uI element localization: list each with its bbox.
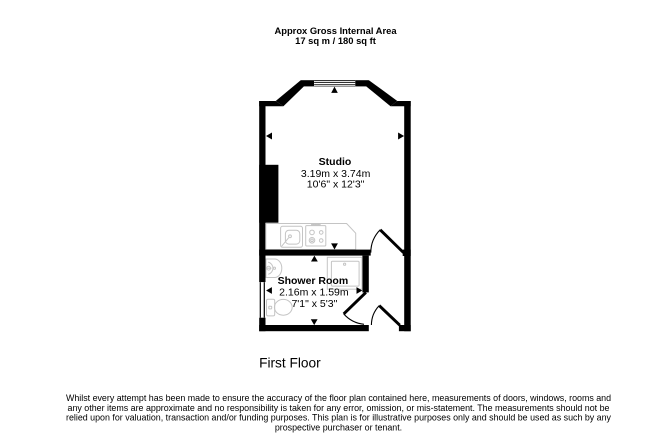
svg-text:Shower Room: Shower Room [278, 275, 349, 287]
svg-text:any other items are approximat: any other items are approximate and no r… [68, 403, 610, 413]
svg-text:7'1" x 5'3": 7'1" x 5'3" [291, 298, 337, 310]
svg-text:prospective purchaser or tenan: prospective purchaser or tenant. [275, 422, 402, 432]
svg-text:relied upon for valuation, tra: relied upon for valuation, transaction a… [66, 413, 612, 423]
svg-text:2.16m x 1.59m: 2.16m x 1.59m [279, 287, 349, 299]
svg-text:10'6" x 12'3": 10'6" x 12'3" [307, 179, 365, 191]
svg-text:Whilst every attempt has been: Whilst every attempt has been made to en… [66, 393, 611, 403]
svg-text:17 sq m / 180 sq ft: 17 sq m / 180 sq ft [295, 35, 376, 46]
svg-text:First Floor: First Floor [259, 356, 321, 371]
svg-text:Studio: Studio [319, 156, 352, 168]
